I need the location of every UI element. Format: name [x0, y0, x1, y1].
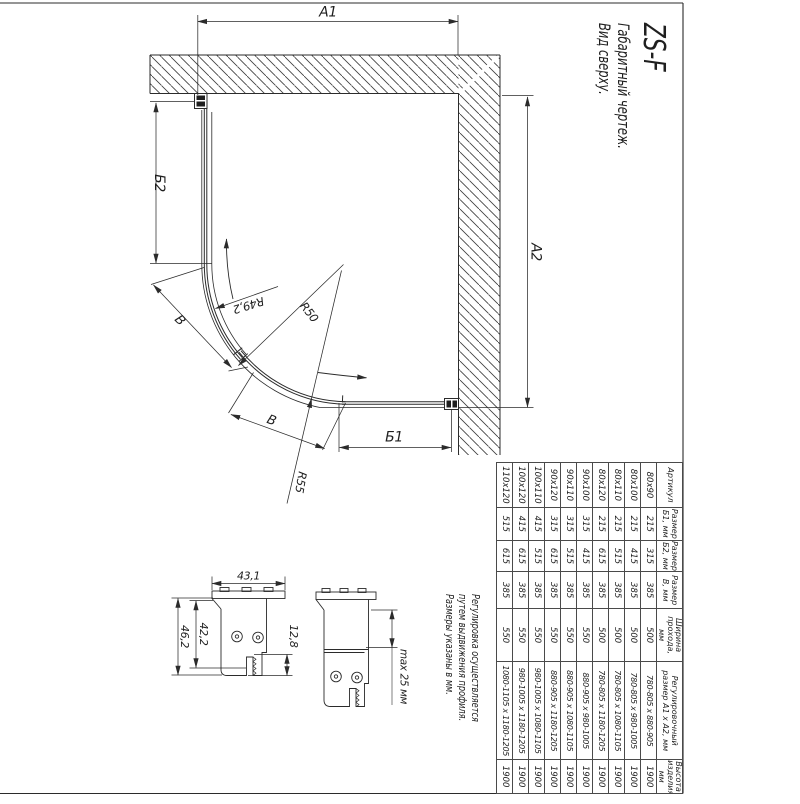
table-cell: 80х120 — [592, 463, 608, 508]
radius-callout-inner: R49,2 — [216, 287, 279, 317]
table-cell: 215 — [640, 507, 656, 540]
dim-label-r-inner: R49,2 — [231, 294, 265, 317]
table-row: 80х90215315385500780-805 х 880-9051900 — [640, 463, 656, 794]
table-cell: 385 — [560, 572, 576, 609]
dim-label-a2: A2 — [528, 242, 544, 261]
table-cell: 550 — [528, 609, 544, 662]
table-cell: 385 — [512, 572, 528, 609]
column-header: Размер В, мм — [656, 572, 682, 609]
table-cell: 1900 — [592, 760, 608, 794]
dim-label-adjustment: max 25 мм — [398, 649, 410, 705]
table-row: 90х110315515385550880-905 х 1080-1105190… — [560, 463, 576, 794]
table-cell: 385 — [608, 572, 624, 609]
table-row: 80х120215615385500780-805 х 1180-1205190… — [592, 463, 608, 794]
table-cell: 515 — [496, 507, 512, 540]
sliding-door — [234, 348, 346, 404]
dim-label-flange-width: 43,1 — [237, 570, 260, 583]
dim-a2: A2 — [502, 96, 544, 408]
table-cell: 385 — [640, 572, 656, 609]
table-cell: 550 — [544, 609, 560, 662]
table-cell: 385 — [544, 572, 560, 609]
profile-dimensions: 43,1 46,2 42,2 12,8 max 25 мм — [172, 570, 410, 706]
table-cell: 1900 — [512, 760, 528, 794]
table-cell: 415 — [576, 540, 592, 572]
side-panel-left — [202, 109, 212, 264]
note-line: Регулировка осуществляется — [468, 594, 481, 697]
side-panel-bottom — [321, 402, 534, 408]
table-cell: 100х120 — [512, 463, 528, 508]
wall-bracket-right — [445, 399, 459, 410]
table-cell: 215 — [592, 507, 608, 540]
radius-callout-outer: R55 — [287, 271, 342, 504]
dim-label-door-left: В — [171, 312, 188, 329]
table-cell: 500 — [592, 609, 608, 662]
table-cell: 880-905 х 1180-1205 — [544, 662, 560, 760]
table-cell: 550 — [512, 609, 528, 662]
table-cell: 315 — [544, 507, 560, 540]
table-cell: 515 — [560, 540, 576, 572]
table-cell: 385 — [496, 572, 512, 609]
table-cell: 415 — [512, 507, 528, 540]
table-cell: 550 — [496, 609, 512, 662]
table-cell: 780-805 х 880-905 — [640, 662, 656, 760]
column-header: Размер Б1, мм — [656, 507, 682, 540]
drawing-subtitle: Габаритный чертеж. — [613, 23, 632, 125]
table-cell: 385 — [624, 572, 640, 609]
table-cell: 80х100 — [624, 463, 640, 508]
dim-label-outer-height: 46,2 — [178, 625, 191, 648]
dim-b2: Б2 — [150, 102, 212, 264]
table-cell: 315 — [640, 540, 656, 572]
table-cell: 315 — [576, 507, 592, 540]
table-cell: 385 — [576, 572, 592, 609]
dim-label-r-outer: R55 — [292, 470, 310, 494]
dim-b1: Б1 — [339, 403, 452, 452]
table-cell: 515 — [608, 540, 624, 572]
note-line: Размеры указаны в мм. — [442, 594, 455, 697]
table-cell: 1900 — [544, 760, 560, 794]
column-header: Регулировочный размер А1 х А2, мм — [656, 662, 682, 760]
table-cell: 1900 — [528, 760, 544, 794]
column-header: Высота изделия, мм — [656, 760, 682, 794]
curved-fixed-segment — [202, 264, 321, 408]
note-line: путем выдвижения профиля. — [455, 594, 468, 697]
notes-block: Регулировка осуществляется путем выдвиже… — [437, 594, 481, 697]
table-cell: 90х100 — [576, 463, 592, 508]
table-cell: 980-1005 х 1080-1105 — [528, 662, 544, 760]
table-row: 80х100215415385500780-805 х 980-10051900 — [624, 463, 640, 794]
dim-label-a1: A1 — [318, 5, 337, 21]
table-header-row: АртикулРазмер Б1, ммРазмер Б2, ммРазмер … — [656, 463, 682, 794]
table-cell: 415 — [528, 507, 544, 540]
table-cell: 100х110 — [528, 463, 544, 508]
table-cell: 385 — [528, 572, 544, 609]
dim-label-b1: Б1 — [385, 430, 403, 446]
table-cell: 1900 — [640, 760, 656, 794]
profile-section-closed — [212, 588, 285, 676]
table-cell: 90х110 — [560, 463, 576, 508]
table-cell: 90х120 — [544, 463, 560, 508]
dim-label-step: 12,8 — [287, 625, 300, 648]
title-block: ZS-F Габаритный чертеж. Вид сверху. — [594, 23, 668, 165]
radius-callout-door: R50 — [239, 265, 344, 366]
table-cell: 1080-1105 х 1180-1205 — [496, 662, 512, 760]
dim-label-inner-height: 42,2 — [197, 623, 210, 646]
table-row: 100х120415615385550980-1005 х 1180-12051… — [512, 463, 528, 794]
wall-bracket-top — [195, 94, 208, 109]
spec-table: АртикулРазмер Б1, ммРазмер Б2, ммРазмер … — [496, 462, 683, 794]
table-cell: 415 — [624, 540, 640, 572]
profile-sections: 43,1 46,2 42,2 12,8 max 25 мм — [172, 570, 410, 707]
table-row: 90х100315415385550880-905 х 980-10051900 — [576, 463, 592, 794]
product-model: ZS-F — [638, 23, 668, 125]
table-cell: 780-805 х 980-1005 — [624, 662, 640, 760]
table-cell: 515 — [528, 540, 544, 572]
table-row: 100х110415515385550980-1005 х 1080-11051… — [528, 463, 544, 794]
column-header: Ширина прохода, мм — [656, 609, 682, 662]
table-cell: 780-805 х 1180-1205 — [592, 662, 608, 760]
table-cell: 615 — [512, 540, 528, 572]
table-cell: 315 — [560, 507, 576, 540]
table-cell: 80х90 — [640, 463, 656, 508]
table-cell: 880-905 х 980-1005 — [576, 662, 592, 760]
column-header: Артикул — [656, 463, 682, 508]
table-cell: 215 — [608, 507, 624, 540]
walls — [150, 55, 500, 455]
table-cell: 80х110 — [608, 463, 624, 508]
view-subtitle: Вид сверху. — [595, 23, 614, 125]
dim-label-r-door: R50 — [297, 299, 321, 325]
table-row: 90х120315615385550880-905 х 1180-1205190… — [544, 463, 560, 794]
table-cell: 780-805 х 1080-1105 — [608, 662, 624, 760]
table-cell: 615 — [496, 540, 512, 572]
drawing-sheet: A1 A2 Б2 Б1 В — [0, 0, 800, 800]
table-row: 80х110215515385500780-805 х 1080-1105190… — [608, 463, 624, 794]
column-header: Размер Б2, мм — [656, 540, 682, 572]
table-cell: 110х120 — [496, 463, 512, 508]
dim-door-right: В — [229, 373, 346, 451]
dim-label-door-right: В — [265, 412, 279, 429]
table-cell: 1900 — [496, 760, 512, 794]
table-cell: 615 — [592, 540, 608, 572]
table-cell: 500 — [624, 609, 640, 662]
table-row: 110х1205156153855501080-1105 х 1180-1205… — [496, 463, 512, 794]
table-cell: 1900 — [576, 760, 592, 794]
table-cell: 215 — [624, 507, 640, 540]
spec-table-wrap: АртикулРазмер Б1, ммРазмер Б2, ммРазмер … — [496, 462, 683, 794]
table-cell: 500 — [608, 609, 624, 662]
table-cell: 880-905 х 1080-1105 — [560, 662, 576, 760]
table-cell: 550 — [560, 609, 576, 662]
table-cell: 1900 — [560, 760, 576, 794]
table-cell: 385 — [592, 572, 608, 609]
table-cell: 980-1005 х 1180-1205 — [512, 662, 528, 760]
table-cell: 500 — [640, 609, 656, 662]
table-cell: 1900 — [608, 760, 624, 794]
table-cell: 550 — [576, 609, 592, 662]
dim-label-b2: Б2 — [151, 174, 167, 192]
table-cell: 1900 — [624, 760, 640, 794]
table-cell: 615 — [544, 540, 560, 572]
